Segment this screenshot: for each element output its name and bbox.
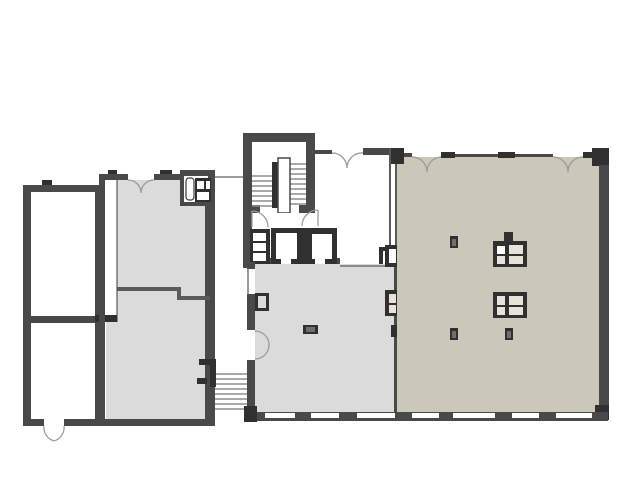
service-shafts: [250, 229, 270, 264]
rail-bar-low: [197, 378, 207, 384]
left-wing-wall-north-a: [99, 174, 128, 180]
north-wall-post-3: [583, 152, 592, 158]
center-hall-column: [303, 325, 318, 334]
center-hall: [247, 245, 416, 420]
south-window-2: [311, 413, 339, 418]
floor-plan-drawing: [0, 0, 630, 480]
east-fixture-s-cell-4: [509, 307, 523, 315]
tower-wall-south-b: [299, 205, 315, 213]
vestibule-wall-north-a: [315, 150, 332, 154]
annex-room-lower: [31, 323, 95, 419]
east-fixture-n-cell-4: [509, 256, 523, 264]
east-fixture-s-cell-2: [497, 307, 505, 315]
west-annex: [23, 180, 103, 441]
lightwell-sill: [95, 315, 117, 322]
east-column-fixture-south: [493, 292, 527, 318]
partition-wall-b: [177, 296, 210, 300]
south-window-6: [512, 413, 539, 418]
left-wing-lightwell: [105, 180, 117, 320]
south-window-7: [556, 413, 592, 418]
vestibule-wall-north-b: [363, 148, 391, 155]
east-wall: [599, 150, 609, 420]
wc-unit-cell-2: [206, 181, 210, 189]
column-inner: [306, 327, 315, 332]
annex-room-upper: [31, 192, 95, 316]
partition-wall-a: [117, 287, 180, 291]
north-wall-post-2: [498, 152, 515, 158]
div-fixture-s-cell-2: [389, 305, 396, 313]
floor-plan-canvas: [0, 0, 630, 480]
west-wall-fixture: [255, 293, 269, 311]
stair-flight-left-treads: [252, 176, 272, 206]
annex-wall-west: [23, 185, 31, 426]
stair-stringer: [278, 158, 290, 213]
north-wall-seg-3: [515, 154, 553, 157]
north-wall-seg-1: [404, 153, 412, 157]
annex-wall-post: [42, 180, 52, 185]
east-hall: [391, 148, 609, 420]
exterior-stair: [214, 372, 247, 412]
shaft-cell-1: [253, 233, 266, 241]
east-fixture-n-cell-3: [509, 245, 523, 254]
east-fixture-n-cell-2: [497, 256, 505, 264]
div-fixture-n-cell-1: [389, 249, 396, 263]
east-fixture-s-cell-3: [509, 296, 523, 305]
west-door-opening: [247, 330, 255, 360]
north-wall-post-1: [441, 152, 455, 158]
stair-divider-wall: [272, 162, 278, 208]
south-corner-block-w: [244, 406, 257, 422]
south-window-5: [453, 413, 495, 418]
wc-unit-cell-1: [197, 181, 204, 189]
exterior-stair-treads: [214, 374, 247, 409]
column-b-inner: [452, 331, 456, 338]
south-window-1: [265, 413, 295, 418]
column-a-inner: [452, 239, 456, 246]
east-corner-block-n: [595, 150, 609, 165]
annex-wall-south-left: [23, 419, 44, 426]
annex-exit-door-arc: [44, 426, 64, 441]
left-wing-wall-post-b: [160, 170, 172, 174]
elevator-1-door-gap: [281, 259, 291, 264]
shaft-cell-3: [253, 253, 266, 261]
south-window-3: [357, 413, 395, 418]
shower-fixture: [186, 178, 194, 200]
annex-wall-north: [23, 185, 103, 192]
tower-wall-east: [306, 133, 315, 213]
east-hall-floor: [397, 157, 605, 413]
elevator-2-door-gap: [315, 259, 325, 264]
east-fixture-s-cell-1: [497, 296, 505, 305]
west-fixture-cell: [258, 296, 266, 308]
elevator-2: [302, 228, 337, 264]
center-hall-floor: [255, 264, 398, 418]
north-corner-block-w: [391, 148, 404, 164]
annex-wall-divider: [31, 316, 95, 323]
elevator-1: [271, 228, 302, 264]
core: [243, 133, 406, 268]
elevator-1-car: [276, 233, 297, 259]
column-c-inner: [507, 331, 511, 338]
south-window-4: [412, 413, 439, 418]
wc-unit-cell-3: [197, 192, 209, 200]
wc-room: [180, 170, 212, 206]
rail-bar-side: [210, 359, 216, 387]
annex-wall-south-right: [64, 419, 103, 426]
elevator-lobby: [250, 210, 340, 268]
left-wing: [95, 170, 243, 426]
left-wing-wall-post-a: [108, 170, 117, 174]
left-wing-wall-south: [99, 419, 215, 426]
shaft-cell-2: [253, 243, 266, 251]
left-wing-wall-west: [99, 174, 105, 426]
div-fixture-s-cell-1: [389, 294, 396, 303]
east-fixture-n-cell-1: [497, 246, 505, 254]
north-wall-seg-2: [455, 154, 498, 157]
tower-wall-north: [243, 133, 315, 142]
elevator-2-car: [312, 234, 332, 259]
